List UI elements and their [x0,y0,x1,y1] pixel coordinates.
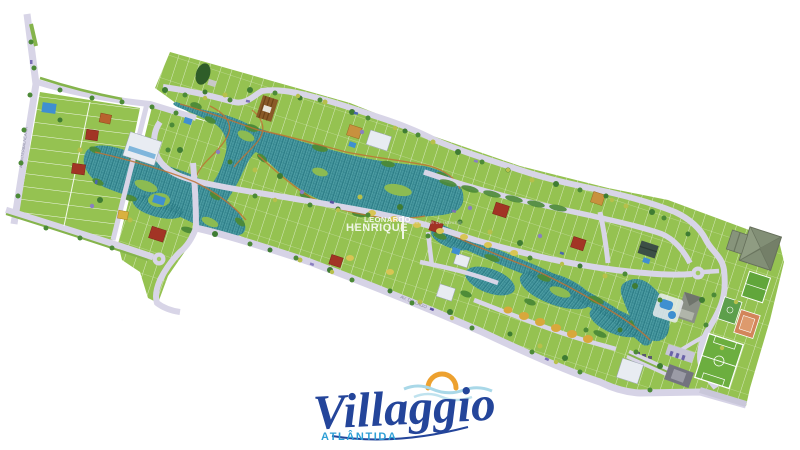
svg-text:HENRIQUE: HENRIQUE [346,222,408,234]
svg-text:ATLÂNTIDA: ATLÂNTIDA [321,430,398,443]
svg-text:CORRETOR DE IMOVEIS: CORRETOR DE IMOVEIS [409,220,462,225]
